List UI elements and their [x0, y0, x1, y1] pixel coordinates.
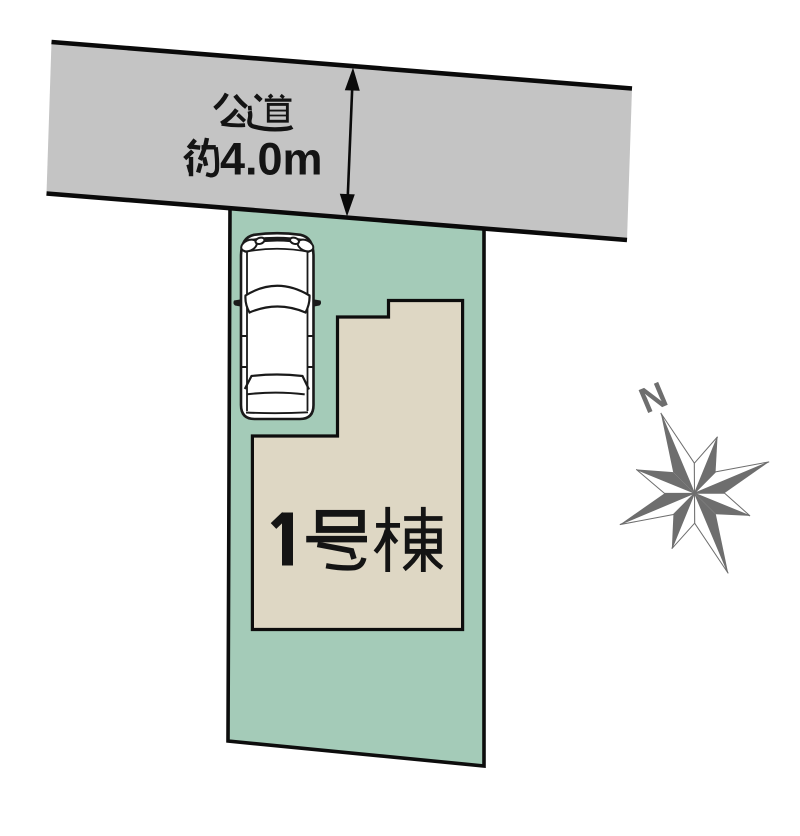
svg-text:N: N — [633, 373, 673, 421]
svg-text:4.0m: 4.0m — [220, 134, 323, 185]
